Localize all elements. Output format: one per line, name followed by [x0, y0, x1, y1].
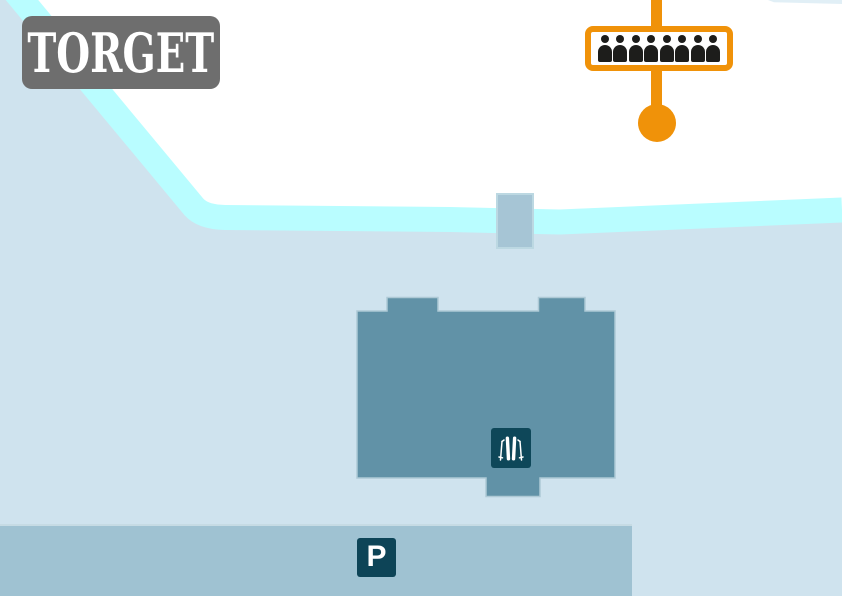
- lift-station-dot[interactable]: [638, 104, 676, 142]
- area-label-text: TORGET: [28, 26, 215, 80]
- area-label: TORGET: [22, 16, 220, 89]
- bridge: [497, 194, 533, 248]
- person-icon: [706, 35, 720, 62]
- person-icon: [644, 35, 658, 62]
- person-icon: [598, 35, 612, 62]
- map-canvas: TORGET P: [0, 0, 842, 596]
- parking-area: [0, 524, 632, 596]
- parking-marker[interactable]: P: [357, 538, 396, 577]
- ski-rental-marker[interactable]: [491, 428, 531, 468]
- parking-label: P: [366, 542, 386, 574]
- person-icon: [629, 35, 643, 62]
- person-icon: [613, 35, 627, 62]
- skis-and-poles-icon: [491, 428, 531, 468]
- person-icon: [675, 35, 689, 62]
- building: [357, 298, 615, 497]
- lift-queue-indicator[interactable]: [585, 26, 733, 71]
- person-icon: [691, 35, 705, 62]
- terrain: [0, 0, 842, 596]
- person-icon: [660, 35, 674, 62]
